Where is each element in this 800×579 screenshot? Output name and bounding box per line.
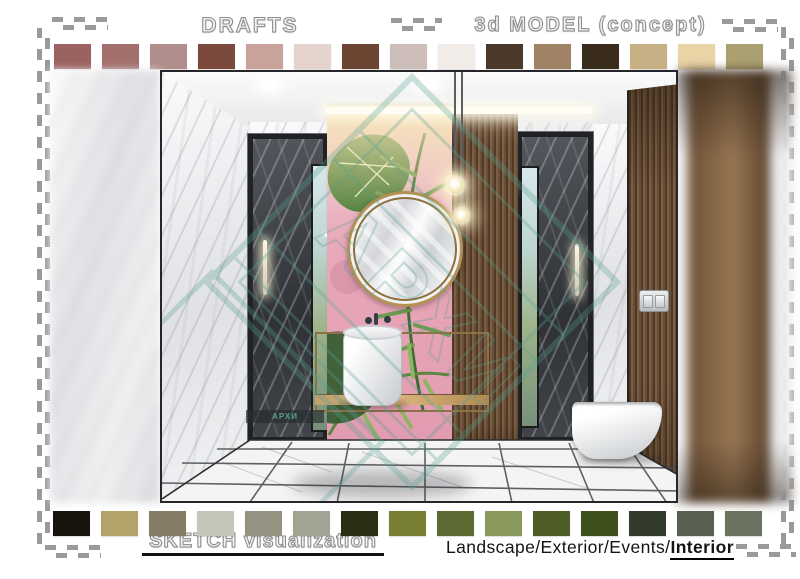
color-swatch	[437, 511, 474, 536]
color-swatch	[725, 511, 762, 536]
color-swatch	[245, 511, 282, 536]
color-swatch	[678, 44, 715, 69]
color-swatch	[581, 511, 618, 536]
color-swatch	[485, 511, 522, 536]
meander-ornament-icon	[37, 28, 50, 544]
archi-watermark: АРХИ	[162, 72, 678, 503]
meander-ornament-icon	[391, 18, 442, 31]
color-swatch	[438, 44, 475, 69]
color-swatch	[294, 44, 331, 69]
color-swatch	[341, 511, 378, 536]
color-swatch	[293, 511, 330, 536]
color-swatch	[726, 44, 763, 69]
categories-caption: Landscape/Exterior/Events/Interior	[446, 537, 734, 558]
color-swatch	[197, 511, 234, 536]
blur-shade-top	[676, 70, 792, 157]
color-palette-bottom	[53, 511, 762, 536]
blur-shade-bottom	[676, 442, 792, 503]
color-swatch	[534, 44, 571, 69]
color-swatch	[533, 511, 570, 536]
category-events: Events/	[609, 537, 670, 557]
meander-ornament-icon	[52, 17, 108, 30]
color-swatch	[486, 44, 523, 69]
color-swatch	[390, 44, 427, 69]
color-swatch	[630, 44, 667, 69]
color-swatch	[389, 511, 426, 536]
color-swatch	[582, 44, 619, 69]
color-palette-top	[54, 44, 763, 69]
color-swatch	[101, 511, 138, 536]
color-swatch	[54, 44, 91, 69]
color-swatch	[102, 44, 139, 69]
color-swatch	[198, 44, 235, 69]
sketch-caption-underline	[142, 553, 384, 556]
color-swatch	[342, 44, 379, 69]
meander-ornament-icon	[736, 544, 796, 557]
category-exterior: Exterior/	[541, 537, 610, 557]
meander-ornament-icon	[45, 545, 101, 558]
archi-watermark-small: АРХИ	[246, 410, 324, 423]
meander-ornament-icon	[722, 19, 778, 32]
bathroom-render: ✦ ✦	[160, 70, 678, 503]
3d-model-caption: 3d MODEL (concept)	[448, 14, 733, 37]
color-swatch	[149, 511, 186, 536]
category-landscape: Landscape/	[446, 537, 541, 557]
drafts-caption: DRAFTS	[150, 14, 350, 38]
color-swatch	[629, 511, 666, 536]
color-swatch	[677, 511, 714, 536]
blurred-marble-left	[50, 70, 160, 503]
color-swatch	[246, 44, 283, 69]
color-swatch	[150, 44, 187, 69]
color-swatch	[53, 511, 90, 536]
category-interior: Interior	[670, 537, 733, 560]
blurred-door-right	[676, 70, 792, 503]
svg-text:АРХИ: АРХИ	[301, 186, 541, 426]
